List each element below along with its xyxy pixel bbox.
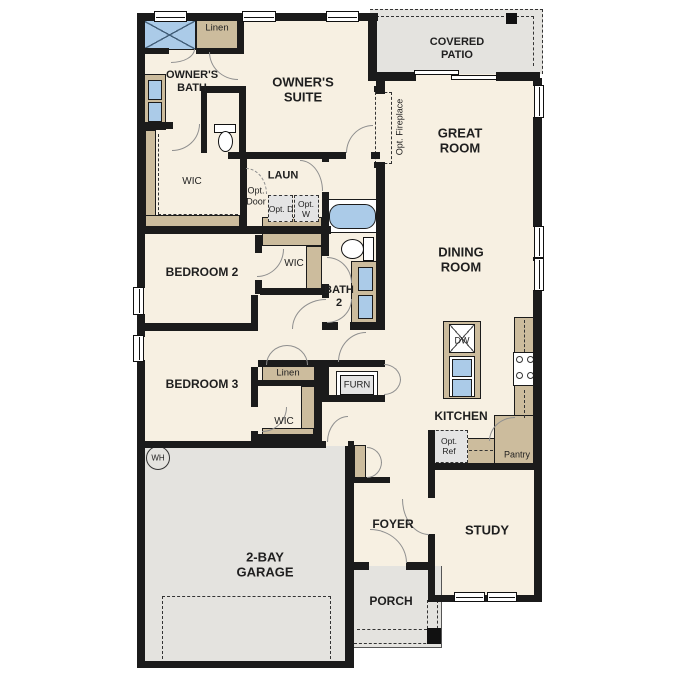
room-label-great-room: GREAT ROOM [429,126,491,157]
wall-segment [239,86,246,154]
label-dishwasher: DW [455,336,470,347]
annotation-opt-refrigerator: Opt. Ref [435,436,463,456]
annotation-opt-fireplace: Opt. Fireplace [395,99,406,156]
wall-segment [352,562,369,570]
room-label-owners-bath: OWNER'S BATH [151,69,233,95]
wall-segment [352,477,390,483]
room-label-garage: 2-BAY GARAGE [227,550,303,581]
label-linen-owner: Linen [205,22,228,33]
toilet-icon [363,237,374,261]
window [454,592,485,602]
window [154,11,187,22]
window [487,592,517,602]
wall-segment [348,441,354,448]
wall-segment [496,72,540,81]
window [534,226,544,258]
burner-icon [516,356,523,363]
coat-closet-shelf [354,445,366,479]
wall-segment [186,13,244,21]
porch-post [427,628,441,644]
wic-shelf [262,233,322,246]
label-wic-owner: WIC [182,176,201,188]
room-label-foyer: FOYER [372,517,413,531]
sink-icon [148,102,162,122]
wall-segment [533,290,542,465]
window [133,287,144,315]
room-label-bedroom2: BEDROOM 2 [166,265,239,279]
label-water-heater: WH [151,453,164,462]
wall-segment [137,441,326,448]
annotation-opt-dryer: Opt. D [268,204,294,214]
room-label-porch: PORCH [369,594,412,608]
wic-shelf-line [158,134,238,215]
window [326,11,359,22]
label-linen-bedroom3: Linen [276,367,299,378]
wall-segment [201,93,207,153]
wic-shelf [145,130,156,227]
wall-segment [428,534,435,598]
room-label-kitchen: KITCHEN [434,409,487,423]
wall-segment [137,661,354,668]
label-furnace: FURN [344,379,370,390]
room-label-owners-suite: OWNER'S SUITE [255,75,351,106]
porch-dashed-line [357,629,427,631]
wall-segment [371,152,380,159]
burner-icon [516,372,523,379]
floor-plan: OWNER'S BATH OWNER'S SUITE Linen WIC LAU… [0,0,687,687]
wall-segment [251,295,258,331]
label-wic-bedroom3: WIC [274,416,293,428]
room-label-bath2: BATH 2 [321,284,357,310]
sink-icon [358,267,373,291]
tub-icon [329,204,376,229]
counter-line [524,390,526,418]
patio-post [506,13,517,24]
room-label-bedroom3: BEDROOM 3 [166,377,239,391]
wall-segment [143,48,169,54]
patio-hatch-line [532,16,534,66]
wall-segment [368,13,377,73]
wall-segment [315,360,322,443]
wall-segment [328,395,385,402]
wall-segment [428,463,542,470]
window [534,85,544,118]
wall-segment [428,595,455,602]
wall-segment [260,288,322,295]
window [242,11,276,22]
wall-segment [251,367,258,407]
toilet-icon [341,239,364,259]
wall-segment [258,434,318,441]
window [534,258,544,291]
wall-segment [533,117,542,227]
sink-icon [358,295,373,319]
label-wic-bedroom2: WIC [284,258,303,270]
wic-shelf [301,386,315,434]
annotation-opt-washer: Opt. W [293,199,319,219]
wall-segment [322,152,329,162]
wall-segment [322,192,329,228]
window [133,335,144,362]
wall-segment [368,72,416,81]
sink-icon [452,379,472,397]
wall-segment [534,463,542,602]
room-label-dining-room: DINING ROOM [430,245,492,276]
wall-segment [258,380,318,386]
wic-shelf [306,246,322,290]
wall-segment [275,13,328,21]
counter-line [524,320,526,352]
sliding-door [451,75,497,80]
wall-segment [322,360,329,402]
room-label-laundry: LAUN [268,170,299,183]
sink-icon [452,359,472,377]
wall-segment [137,13,145,288]
shower-icon [143,20,196,50]
wall-segment [137,323,257,331]
label-pantry: Pantry [504,450,530,461]
wall-segment [137,446,145,668]
wall-segment [137,360,145,448]
counter-line [469,450,493,452]
wall-segment [376,162,385,330]
garage-door-outline [162,596,331,664]
room-label-study: STUDY [465,522,509,537]
wall-segment [251,431,258,443]
wall-segment [140,122,173,129]
wall-segment [137,226,331,234]
wall-segment [322,226,329,256]
room-label-covered-patio: COVERED PATIO [419,36,495,62]
